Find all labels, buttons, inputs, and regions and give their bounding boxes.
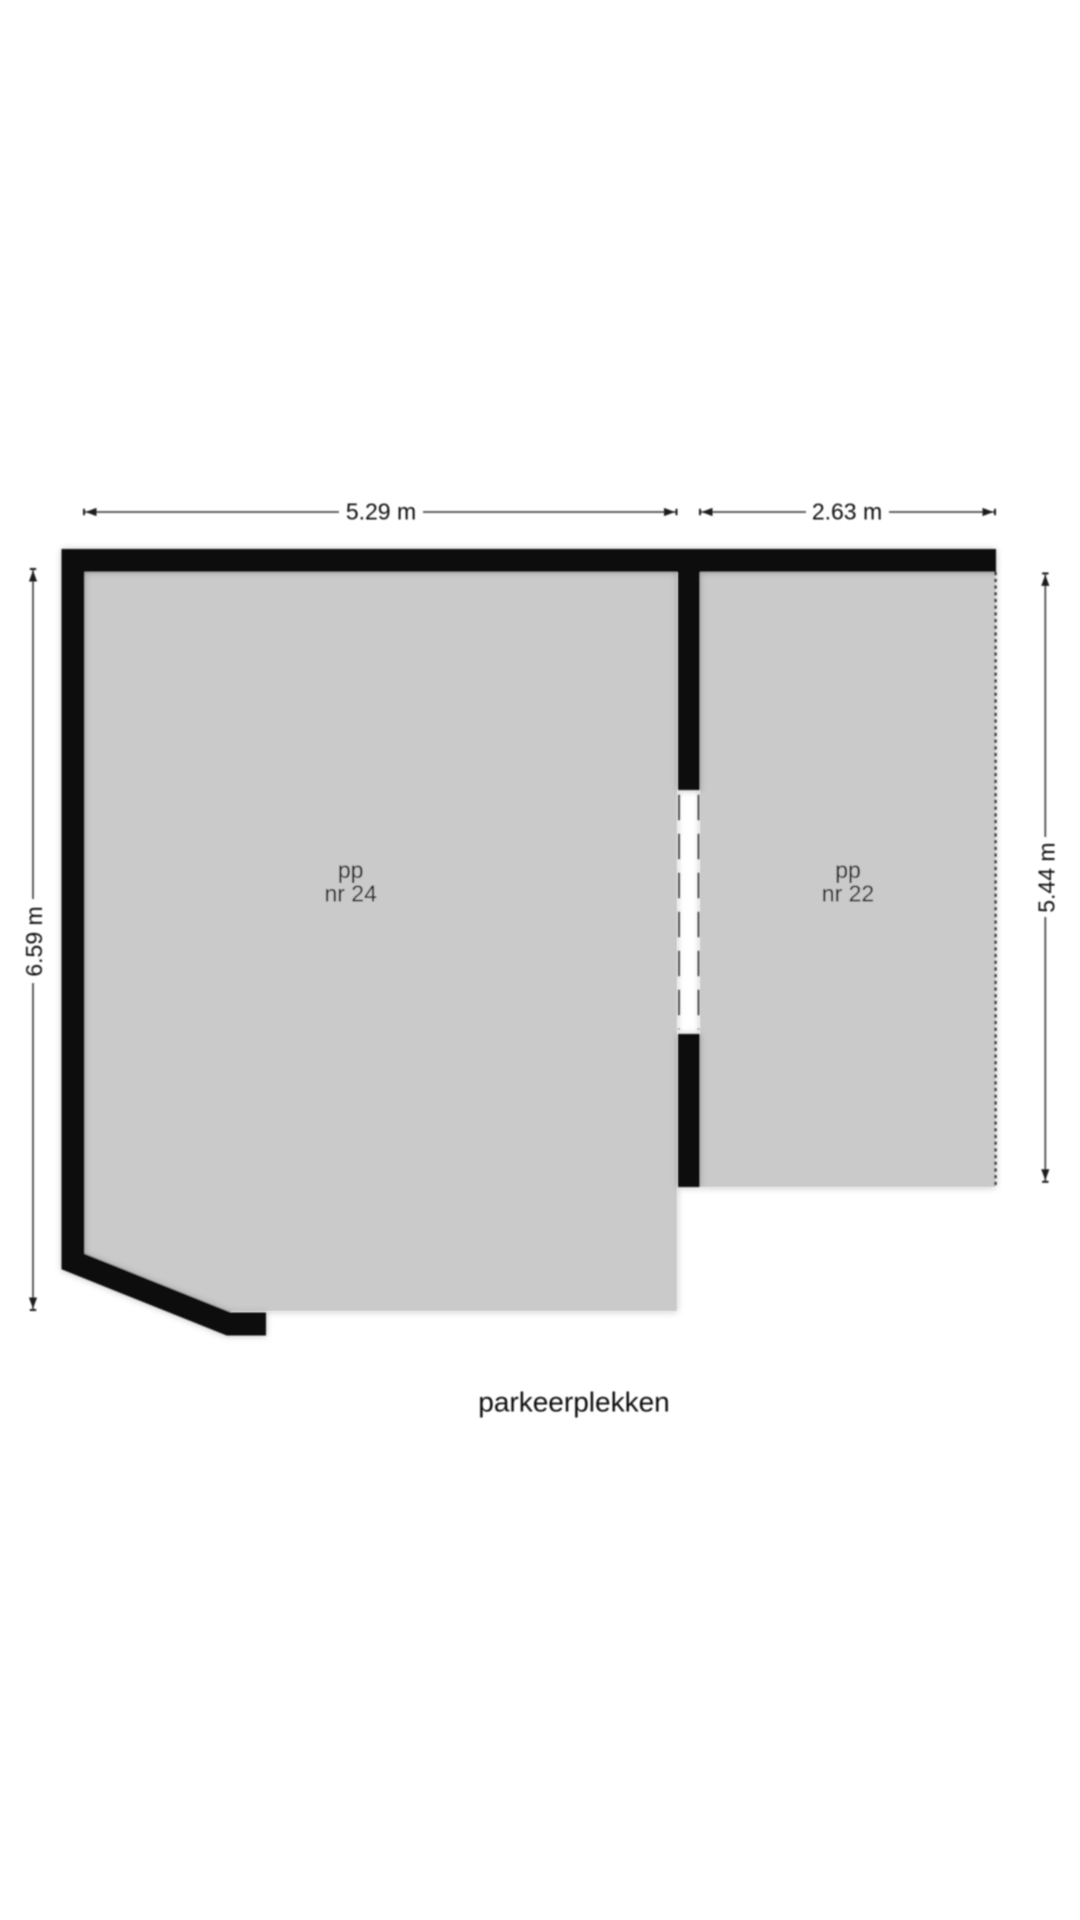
svg-text:nr 24: nr 24 [324, 881, 377, 907]
svg-text:2.63 m: 2.63 m [812, 499, 882, 525]
svg-text:pp: pp [835, 857, 861, 883]
svg-text:pp: pp [338, 857, 364, 883]
svg-text:parkeerplekken: parkeerplekken [478, 1387, 669, 1418]
svg-text:nr 22: nr 22 [822, 881, 874, 907]
svg-text:6.59 m: 6.59 m [21, 906, 47, 976]
svg-text:5.29 m: 5.29 m [346, 499, 416, 525]
svg-text:5.44 m: 5.44 m [1034, 842, 1060, 912]
